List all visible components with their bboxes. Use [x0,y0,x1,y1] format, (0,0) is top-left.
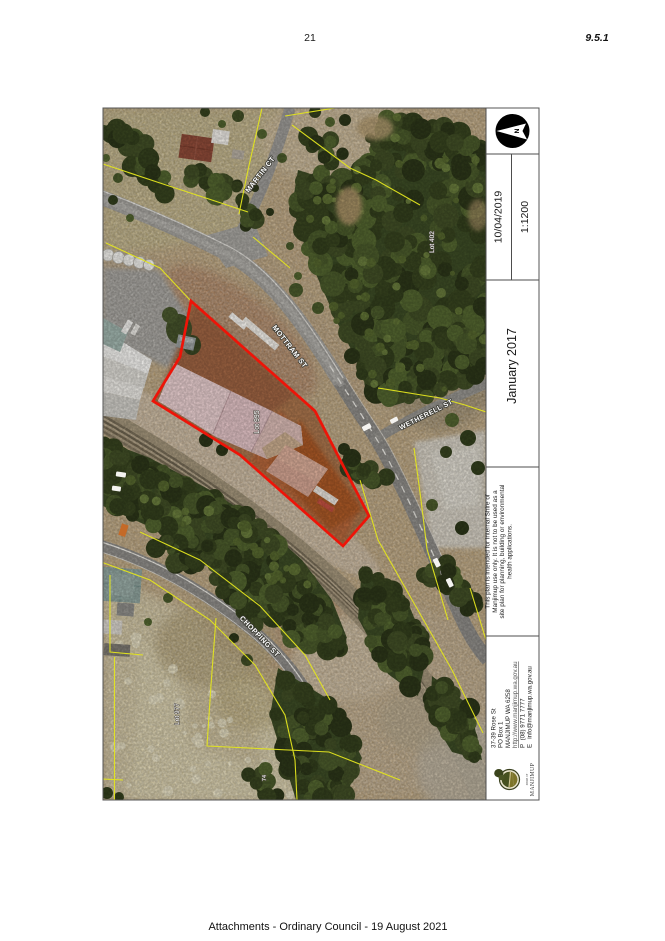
svg-text:N: N [514,128,521,133]
svg-text:PO Box 1: PO Box 1 [498,721,505,748]
svg-text:E info@manjimup.wa.gov.au: E info@manjimup.wa.gov.au [527,666,534,748]
svg-text:http://www.manjimup.wa.gov.au: http://www.manjimup.wa.gov.au [512,661,519,748]
svg-text:January 2017: January 2017 [505,328,519,404]
svg-text:health applications.: health applications. [506,524,513,579]
svg-text:9.5.1: 9.5.1 [585,32,609,44]
svg-text:SHIRE OF: SHIRE OF [526,773,529,785]
svg-text:Lot 402: Lot 402 [429,231,436,253]
svg-text:74: 74 [262,775,268,781]
svg-text:site plan for planning, buildi: site plan for planning, building or envi… [499,485,506,619]
svg-text:Lot 995: Lot 995 [254,410,261,433]
svg-text:37-39 Rose St: 37-39 Rose St [491,708,498,748]
svg-text:MANJIMUP WA 6258: MANJIMUP WA 6258 [505,689,512,748]
svg-text:Attachments - Ordinary Council: Attachments - Ordinary Council - 19 Augu… [208,921,447,933]
svg-text:10/04/2019: 10/04/2019 [493,191,505,244]
svg-text:21: 21 [304,32,316,44]
svg-text:P (08) 9771 7777: P (08) 9771 7777 [519,698,526,748]
svg-text:This plan is intended for inte: This plan is intended for internal Shire… [485,494,492,609]
svg-text:Manjimup use only. It is not t: Manjimup use only. It is not to be used … [492,490,499,613]
svg-text:Lot 977: Lot 977 [174,703,181,725]
svg-text:MANJIMUP: MANJIMUP [530,763,536,796]
svg-text:1:1200: 1:1200 [519,201,531,233]
